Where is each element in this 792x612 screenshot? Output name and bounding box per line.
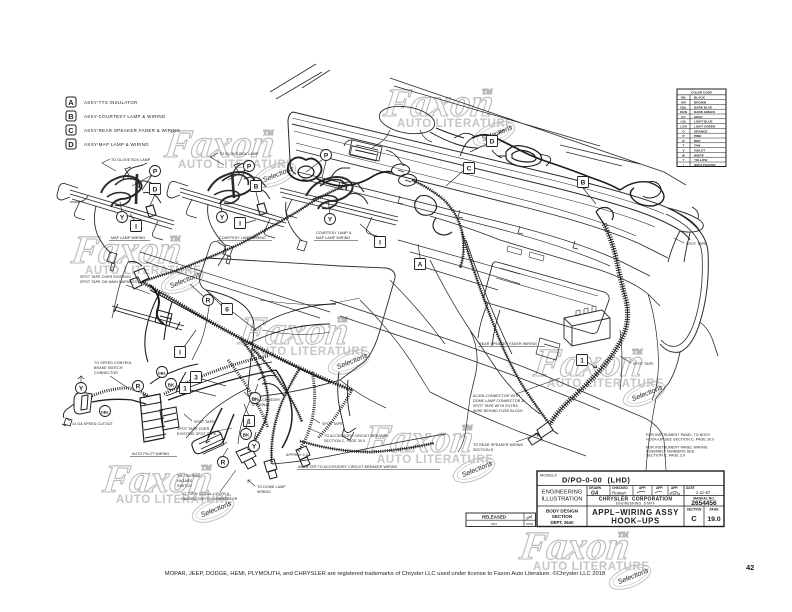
svg-text:W: W (682, 153, 685, 157)
svg-text:D: D (68, 140, 74, 149)
svg-text:1-28-04: 1-28-04 (670, 492, 681, 496)
svg-text:VIOLET: VIOLET (694, 149, 705, 153)
svg-text:BK: BK (243, 433, 250, 438)
svg-text:B: B (581, 180, 586, 187)
svg-text:HAZARD: HAZARD (177, 479, 193, 483)
svg-text:YELLOW: YELLOW (694, 158, 707, 162)
svg-text:ILLUSTRATION: ILLUSTRATION (541, 497, 582, 503)
svg-text:R: R (221, 460, 226, 467)
svg-text:APP.: APP. (656, 486, 663, 490)
svg-text:C: C (467, 166, 472, 173)
svg-text:WIRE BEHIND FUSE BLOCK: WIRE BEHIND FUSE BLOCK (473, 409, 523, 413)
svg-text:DATE: DATE (686, 486, 694, 490)
svg-text:TO GLOVE BOX LAMP: TO GLOVE BOX LAMP (111, 158, 151, 162)
svg-text:D/PO-0-00 (LHD): D/PO-0-00 (LHD) (562, 476, 630, 485)
svg-text:ENGINEERING: ENGINEERING (542, 490, 583, 496)
svg-text:Rowan: Rowan (612, 491, 627, 496)
svg-text:RELEASED: RELEASED (482, 515, 506, 520)
svg-text:SPOT TAPE: SPOT TAPE (686, 242, 707, 246)
svg-text:DBL: DBL (158, 371, 167, 376)
svg-text:REAR SPEAKER FADER WIRING: REAR SPEAKER FADER WIRING (479, 342, 537, 346)
svg-text:RED: RED (694, 139, 701, 143)
svg-text:SECTION D: SECTION D (473, 448, 494, 452)
svg-text:Y: Y (220, 215, 225, 222)
svg-text:P: P (682, 134, 684, 138)
svg-text:1: 1 (580, 358, 584, 365)
svg-text:SPOT TAPE OVER EXISTING: SPOT TAPE OVER EXISTING (80, 275, 131, 279)
svg-text:SWITCH: SWITCH (177, 484, 192, 488)
svg-text:CHECKED: CHECKED (612, 486, 628, 490)
svg-text:I: I (379, 240, 381, 247)
svg-text:SECTION C, PAGE 30.0: SECTION C, PAGE 30.0 (324, 439, 365, 443)
svg-text:ORANGE: ORANGE (694, 129, 708, 133)
svg-text:COURTESY LAMP WIRING: COURTESY LAMP WIRING (219, 236, 266, 240)
svg-text:TO TURN SIGNAL LEVER &: TO TURN SIGNAL LEVER & (181, 492, 230, 496)
svg-text:I: I (239, 221, 241, 228)
svg-text:HAZARD SWITCH CONNECTOR: HAZARD SWITCH CONNECTOR (181, 497, 238, 501)
svg-text:Y: Y (120, 215, 125, 222)
svg-text:TAN: TAN (694, 144, 701, 148)
svg-text:R64: R64 (491, 522, 497, 526)
svg-text:TO ACCESSORY: TO ACCESSORY (251, 398, 281, 402)
svg-text:DOME LAMP CONNECTOR &: DOME LAMP CONNECTOR & (473, 399, 525, 403)
svg-text:SPOT TAPE ON MAIN HARNESS: SPOT TAPE ON MAIN HARNESS (80, 280, 138, 284)
svg-text:HOOK–UPS: HOOK–UPS (611, 517, 660, 526)
svg-text:DATE: DATE (526, 522, 533, 526)
svg-text:APPROX 4.0: APPROX 4.0 (286, 453, 308, 457)
svg-text:DARK GREEN: DARK GREEN (694, 110, 716, 114)
svg-text:WIRING: WIRING (257, 490, 271, 494)
svg-text:SPOT TAPE: SPOT TAPE (633, 362, 654, 366)
svg-text:APP.: APP. (671, 486, 678, 490)
svg-text:MAP LAMP WIRING: MAP LAMP WIRING (316, 236, 350, 240)
svg-text:MAP LAMP WIRING: MAP LAMP WIRING (111, 236, 145, 240)
svg-text:ENGINEERING STAFF: ENGINEERING STAFF (616, 502, 655, 506)
svg-text:LGN: LGN (680, 125, 687, 129)
svg-text:PINK: PINK (694, 134, 702, 138)
svg-text:APP.: APP. (639, 486, 646, 490)
svg-text:TO T/SIGNAL: TO T/SIGNAL (177, 474, 200, 478)
svg-text:TO GLOVE BOX LAMP: TO GLOVE BOX LAMP (219, 152, 259, 156)
svg-text:42: 42 (746, 563, 754, 572)
svg-text:1: 1 (183, 386, 187, 393)
svg-text:Y: Y (328, 217, 333, 224)
svg-text:PAGE: PAGE (709, 508, 719, 512)
svg-text:3: 3 (194, 375, 198, 382)
svg-text:SECTION C, PAGE 2.0: SECTION C, PAGE 2.0 (646, 454, 685, 458)
svg-text:BODY DESIGN: BODY DESIGN (546, 509, 579, 514)
svg-text:DRAWN: DRAWN (589, 486, 602, 490)
svg-text:BK: BK (681, 96, 686, 100)
svg-text:BRAKE SWITCH: BRAKE SWITCH (94, 366, 123, 370)
svg-text:SPOT TAPE OVER: SPOT TAPE OVER (177, 427, 210, 431)
svg-text:C: C (68, 126, 74, 135)
svg-text:R: R (136, 384, 141, 391)
svg-text:D: D (490, 139, 495, 146)
svg-text:T: T (683, 144, 685, 148)
svg-text:BROWN: BROWN (694, 101, 707, 105)
svg-text:BR: BR (681, 101, 686, 105)
svg-text:I: I (179, 350, 181, 357)
svg-text:DBL: DBL (101, 410, 110, 415)
svg-text:DARK BLUE: DARK BLUE (694, 105, 712, 109)
svg-text:Y: Y (252, 444, 257, 451)
svg-text:P: P (324, 153, 329, 160)
svg-text:BK: BK (168, 383, 175, 388)
svg-text:ASSY-COURTESY LAMP & WIRING: ASSY-COURTESY LAMP & WIRING (84, 114, 166, 119)
svg-text:EXISTING SPOT TAPE: EXISTING SPOT TAPE (177, 432, 217, 436)
svg-text:HOOK-UP SEE SECTION C, PAGE 30: HOOK-UP SEE SECTION C, PAGE 30.0 (646, 438, 714, 442)
svg-text:ASSY-TTS INSULATOR: ASSY-TTS INSULATOR (84, 100, 138, 105)
svg-text:AMMETER TO ACCESSORY CIRCUIT B: AMMETER TO ACCESSORY CIRCUIT BREAKER WIR… (298, 465, 398, 469)
svg-text:SECTION: SECTION (552, 514, 573, 519)
svg-text:TO SPEED CONTROL: TO SPEED CONTROL (94, 361, 132, 365)
svg-text:SECTION: SECTION (687, 508, 702, 512)
svg-text:14 GA SPEED CUTOUT: 14 GA SPEED CUTOUT (72, 422, 114, 426)
svg-text:AUTO PILOT WIRING: AUTO PILOT WIRING (132, 452, 169, 456)
svg-text:1-11-67: 1-11-67 (696, 490, 711, 495)
svg-text:MOPAR, JEEP, DODGE, HEMI, PLYM: MOPAR, JEEP, DODGE, HEMI, PLYMOUTH, and … (165, 570, 605, 577)
svg-text:TO ACCESSORY CIRCUIT BREAKER: TO ACCESSORY CIRCUIT BREAKER (324, 434, 389, 438)
svg-text:C: C (691, 514, 697, 523)
svg-text:6: 6 (225, 307, 229, 314)
svg-text:DGN: DGN (680, 110, 688, 114)
svg-text:WHITE: WHITE (694, 153, 704, 157)
svg-text:COLOR CODE: COLOR CODE (691, 91, 712, 95)
svg-text:I: I (135, 224, 137, 231)
svg-text:TO REAR SPEAKER WIRING: TO REAR SPEAKER WIRING (473, 443, 524, 447)
svg-text:DBL: DBL (680, 105, 686, 109)
svg-text:LIGHT BLUE: LIGHT BLUE (694, 120, 713, 124)
svg-text:Y: Y (79, 386, 84, 393)
svg-text:MODELS: MODELS (540, 473, 557, 478)
svg-text:CONNECTOR: CONNECTOR (94, 371, 118, 375)
svg-text:ALIGN CONNECTOR WITH: ALIGN CONNECTOR WITH (473, 394, 520, 398)
svg-text:LBL: LBL (680, 120, 686, 124)
svg-text:GRAY: GRAY (694, 115, 704, 119)
svg-text:ASSY-REAR SPEAKER FADER & WIRI: ASSY-REAR SPEAKER FADER & WIRING (84, 128, 180, 133)
svg-text:TO DOME LAMP: TO DOME LAMP (257, 485, 286, 489)
svg-text:LIGHT GREEN: LIGHT GREEN (694, 125, 716, 129)
svg-text:WITH TRACER: WITH TRACER (694, 163, 716, 167)
svg-text:COURTESY LAMP &: COURTESY LAMP & (316, 231, 352, 235)
svg-text:SPOT TAPE: SPOT TAPE (194, 420, 215, 424)
svg-text:ASSY-MAP LAMP & WIRING: ASSY-MAP LAMP & WIRING (84, 142, 149, 147)
svg-text:19.0: 19.0 (707, 516, 720, 523)
svg-text:B: B (68, 112, 74, 121)
svg-text:R: R (206, 298, 211, 305)
svg-text:BLACK: BLACK (694, 96, 706, 100)
svg-text:DEPT. 2640: DEPT. 2640 (551, 520, 575, 525)
svg-text:FOR INSTRUMENT PANEL TO BODY: FOR INSTRUMENT PANEL TO BODY (646, 433, 711, 437)
svg-text:GA: GA (591, 491, 599, 497)
svg-text:D: D (153, 187, 158, 194)
svg-text:P: P (153, 169, 158, 176)
svg-text:A: A (418, 262, 423, 269)
svg-text:SPOT TAPE: SPOT TAPE (322, 422, 343, 426)
svg-text:A: A (68, 98, 74, 107)
svg-text:TERMINAL: TERMINAL (251, 403, 270, 407)
svg-text:SPOT TAPE WITH EXTRA: SPOT TAPE WITH EXTRA (473, 404, 518, 408)
svg-text:P: P (247, 164, 252, 171)
svg-text:B: B (254, 184, 259, 191)
